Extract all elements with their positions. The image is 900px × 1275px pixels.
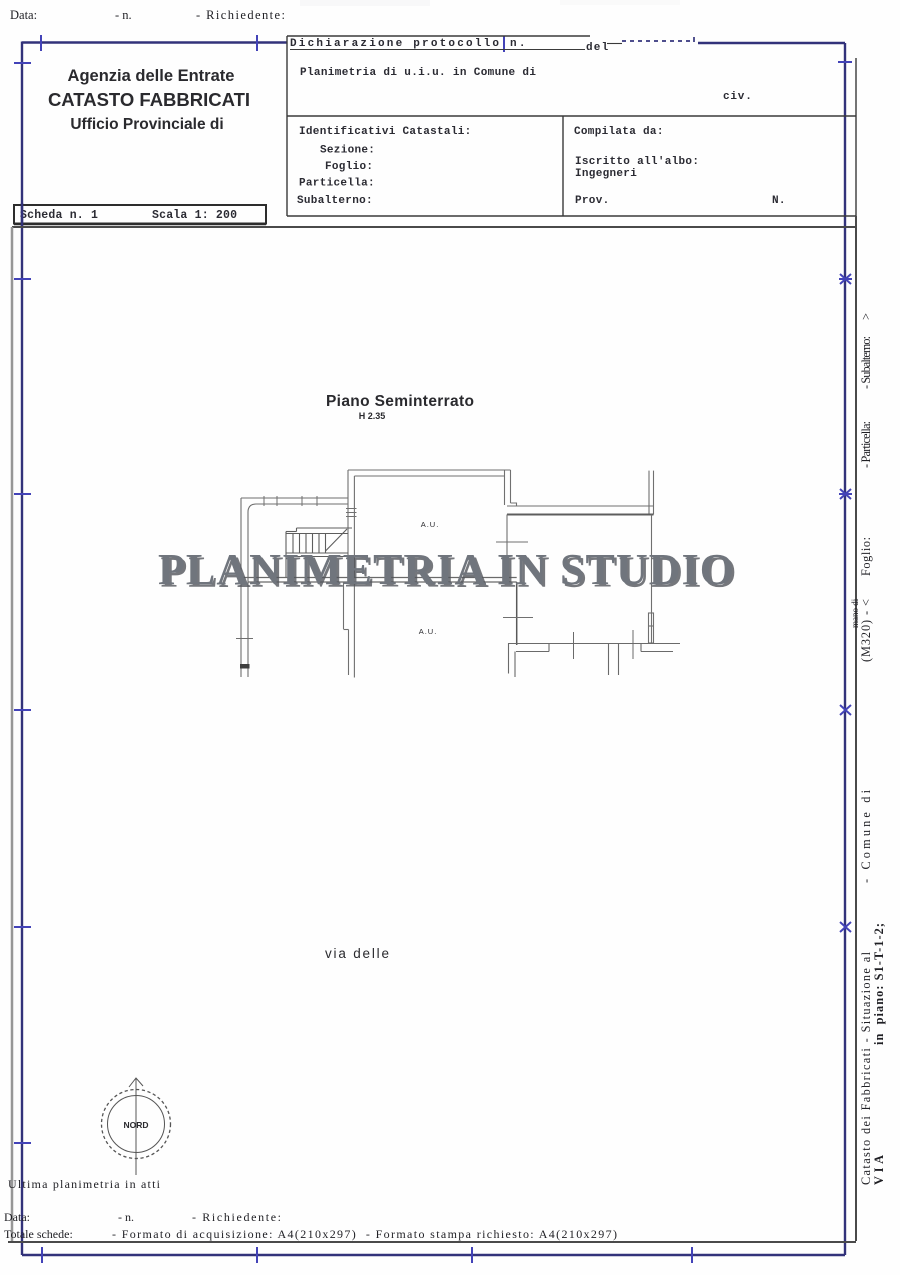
svg-text:civ.: civ. xyxy=(723,91,753,103)
svg-text:del: del xyxy=(586,42,609,54)
svg-text:in piano: S1-T-1-2;: in piano: S1-T-1-2; xyxy=(872,923,886,1045)
svg-text:Dichiarazione protocollo n.: Dichiarazione protocollo n. xyxy=(290,38,528,50)
svg-text:- Richiedente:: - Richiedente: xyxy=(192,1210,281,1224)
svg-text:PLANIMETRIA IN STUDIO: PLANIMETRIA IN STUDIO xyxy=(158,545,734,594)
svg-text:Foglio:: Foglio: xyxy=(325,161,373,173)
svg-text:- n.: - n. xyxy=(118,1210,134,1224)
svg-text:Iscritto all'albo:: Iscritto all'albo: xyxy=(575,156,699,168)
svg-text:CATASTO FABBRICATI: CATASTO FABBRICATI xyxy=(48,89,250,110)
svg-text:Data:: Data: xyxy=(4,1210,30,1224)
svg-text:VIA: VIA xyxy=(872,1155,886,1185)
svg-text:Compilata da:: Compilata da: xyxy=(574,126,664,138)
svg-text:N.: N. xyxy=(772,195,786,207)
svg-text:Prov.: Prov. xyxy=(575,195,610,207)
svg-text:Data:: Data: xyxy=(10,8,37,22)
svg-text:A.U.: A.U. xyxy=(421,520,440,529)
svg-text:Sezione:: Sezione: xyxy=(320,145,375,157)
svg-text:Scheda n. 1: Scheda n. 1 xyxy=(20,209,98,222)
svg-text:Piano Seminterrato: Piano Seminterrato xyxy=(326,393,474,410)
svg-text:- Richiedente:: - Richiedente: xyxy=(196,8,285,22)
svg-text:- Comune di: - Comune di xyxy=(859,789,873,883)
svg-text:Ultima planimetria in atti: Ultima planimetria in atti xyxy=(8,1177,161,1191)
svg-text:Catasto dei Fabbricati - Situa: Catasto dei Fabbricati - Situazione al xyxy=(859,951,873,1185)
svg-text:NORD: NORD xyxy=(123,1120,148,1130)
svg-text:A.U.: A.U. xyxy=(419,627,438,636)
svg-text:Ufficio Provinciale di: Ufficio Provinciale di xyxy=(70,116,223,133)
svg-text:Totale schede:: Totale schede: xyxy=(4,1227,73,1241)
svg-text:Particella:: Particella: xyxy=(299,178,375,190)
svg-text:Identificativi Catastali:: Identificativi Catastali: xyxy=(299,126,472,138)
svg-text:H 2.35: H 2.35 xyxy=(359,411,386,421)
svg-text:via delle: via delle xyxy=(325,946,389,961)
svg-text:Subalterno:: Subalterno: xyxy=(297,195,373,207)
svg-text:- Particella:: - Particella: xyxy=(859,421,873,468)
svg-text:>: > xyxy=(859,313,873,320)
svg-text:- n.: - n. xyxy=(115,8,132,22)
svg-text:Ingegneri: Ingegneri xyxy=(575,168,637,180)
svg-text:Foglio:: Foglio: xyxy=(859,537,873,576)
svg-text:mano di: mano di xyxy=(850,598,860,628)
svg-text:Planimetria di u.i.u. in Comun: Planimetria di u.i.u. in Comune di xyxy=(300,67,536,79)
svg-text:Scala 1: 200: Scala 1: 200 xyxy=(152,209,237,222)
svg-text:- Subalterno:: - Subalterno: xyxy=(859,336,873,389)
svg-text:(M320) - <: (M320) - < xyxy=(859,599,873,662)
svg-text:Agenzia delle Entrate: Agenzia delle Entrate xyxy=(68,67,235,85)
